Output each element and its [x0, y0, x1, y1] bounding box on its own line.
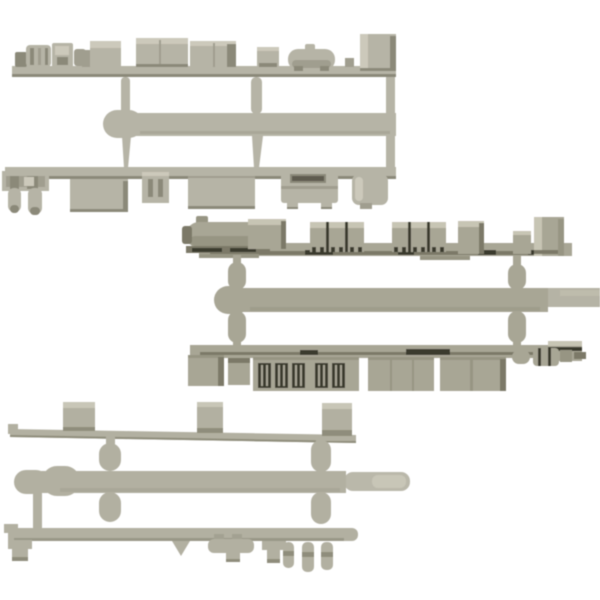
sprue1-ribbed-box-part — [142, 172, 169, 203]
sprue2-floor-bar — [214, 286, 600, 314]
sprue1-runner-drop-left — [121, 77, 130, 114]
model-sprues-photo — [0, 0, 600, 600]
sprue1-taper-left — [122, 136, 131, 168]
sprue1-air-tank-part — [288, 44, 335, 71]
sprue1-floor-bar — [103, 110, 396, 138]
sprue1-rounded-box-part — [352, 169, 388, 209]
sprue3-wedge-part — [172, 541, 190, 556]
sprue1-big-box-part — [360, 34, 396, 71]
sprue1-nub-part — [345, 58, 354, 67]
sprue3-top-rail — [8, 424, 356, 443]
sprue2-ribbed-cluster-a — [310, 222, 364, 252]
sprue1-hanging-box-b — [188, 176, 255, 209]
sprue1-runner-drop-right — [386, 77, 395, 114]
photo-canvas — [0, 0, 600, 600]
sprue1-equipment-box-a — [136, 38, 188, 67]
sprue3-foot-part-left — [8, 540, 32, 561]
sprue2-hanging-box-left — [188, 355, 224, 386]
sprue2-hanging-box-wide-a — [368, 357, 434, 391]
sprue3-floor-bar — [14, 466, 410, 496]
sprue-2-middle — [182, 216, 600, 391]
sprue2-small-box-part — [513, 231, 531, 254]
sprue3-peg-parts — [283, 542, 333, 572]
sprue1-small-box-part — [257, 47, 279, 67]
sprue2-tall-box-part — [534, 217, 564, 256]
sprue-3-bottom — [4, 402, 410, 572]
sprue2-hanging-box-wide-b — [440, 357, 506, 391]
sprue1-footed-box-part — [281, 172, 338, 209]
sprue3-block-part-b — [197, 402, 223, 433]
sprue3-block-part-c — [322, 403, 352, 441]
sprue2-box-part-c — [458, 221, 484, 254]
sprue1-runner-drop-center — [251, 77, 262, 114]
sprue3-left-stem — [33, 493, 42, 530]
sprue1-taper-center — [252, 136, 263, 168]
sprue2-ribbed-cluster-b — [392, 222, 446, 252]
sprue3-foot-part-right — [262, 541, 286, 563]
sprue3-block-part-a — [63, 402, 95, 431]
sprue1-hanging-box-a — [70, 179, 128, 212]
sprue2-box-part-a — [248, 219, 286, 249]
sprue1-stepped-box-part — [82, 41, 121, 67]
sprue1-top-rail — [12, 66, 396, 77]
sprue1-equipment-box-b — [190, 41, 236, 67]
sprue2-pipe-parts — [512, 348, 572, 366]
sprue3-bottom-rail — [4, 524, 358, 541]
sprue-1-top — [2, 34, 396, 215]
sprue1-coupler-bracket-part — [2, 171, 49, 215]
sprue2-battery-grille-part — [253, 357, 359, 391]
sprue1-taper-right — [386, 136, 395, 169]
sprue1-compressor-part — [15, 43, 93, 67]
sprue2-hanging-box-small — [228, 358, 250, 385]
